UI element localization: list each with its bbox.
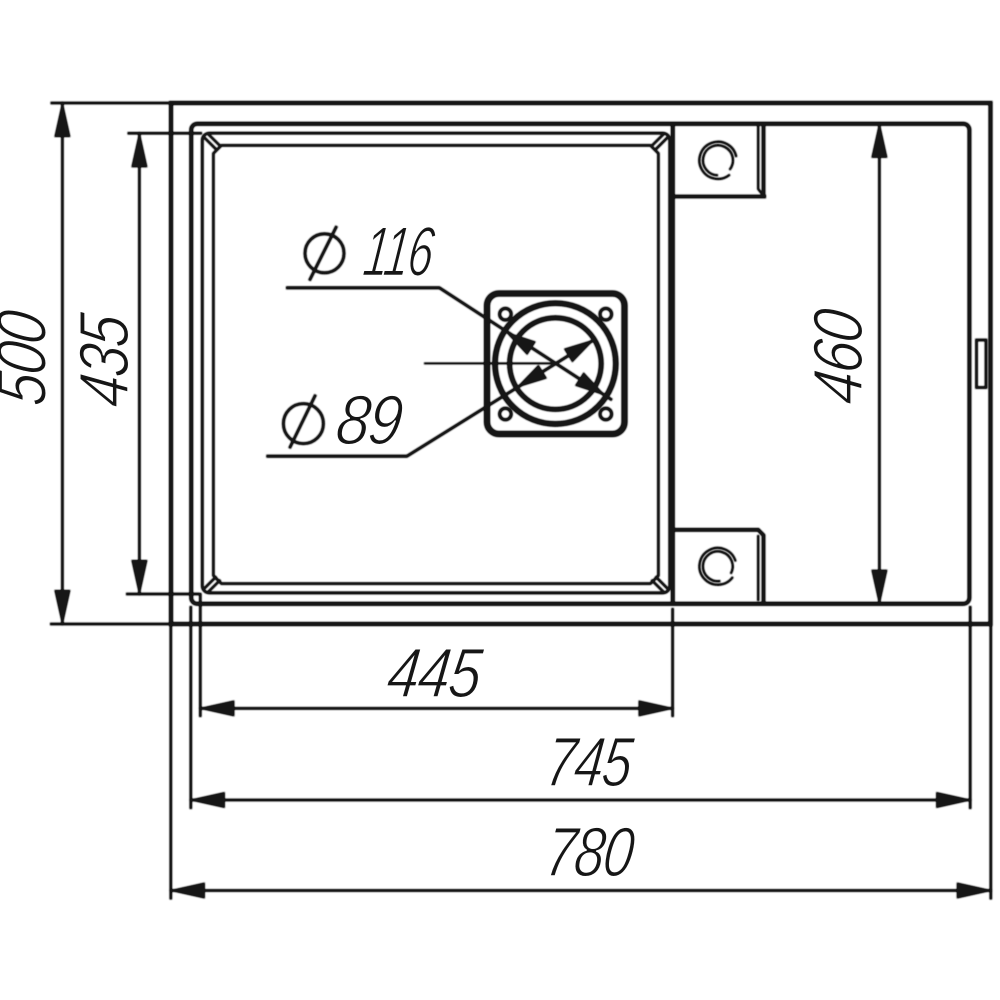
- svg-text:435: 435: [64, 309, 143, 411]
- svg-text:780: 780: [542, 812, 639, 891]
- svg-text:500: 500: [0, 306, 60, 409]
- svg-text:745: 745: [542, 722, 638, 801]
- svg-text:460: 460: [798, 305, 877, 408]
- svg-text:445: 445: [383, 633, 487, 712]
- svg-text:89: 89: [332, 380, 406, 459]
- svg-text:116: 116: [360, 212, 440, 291]
